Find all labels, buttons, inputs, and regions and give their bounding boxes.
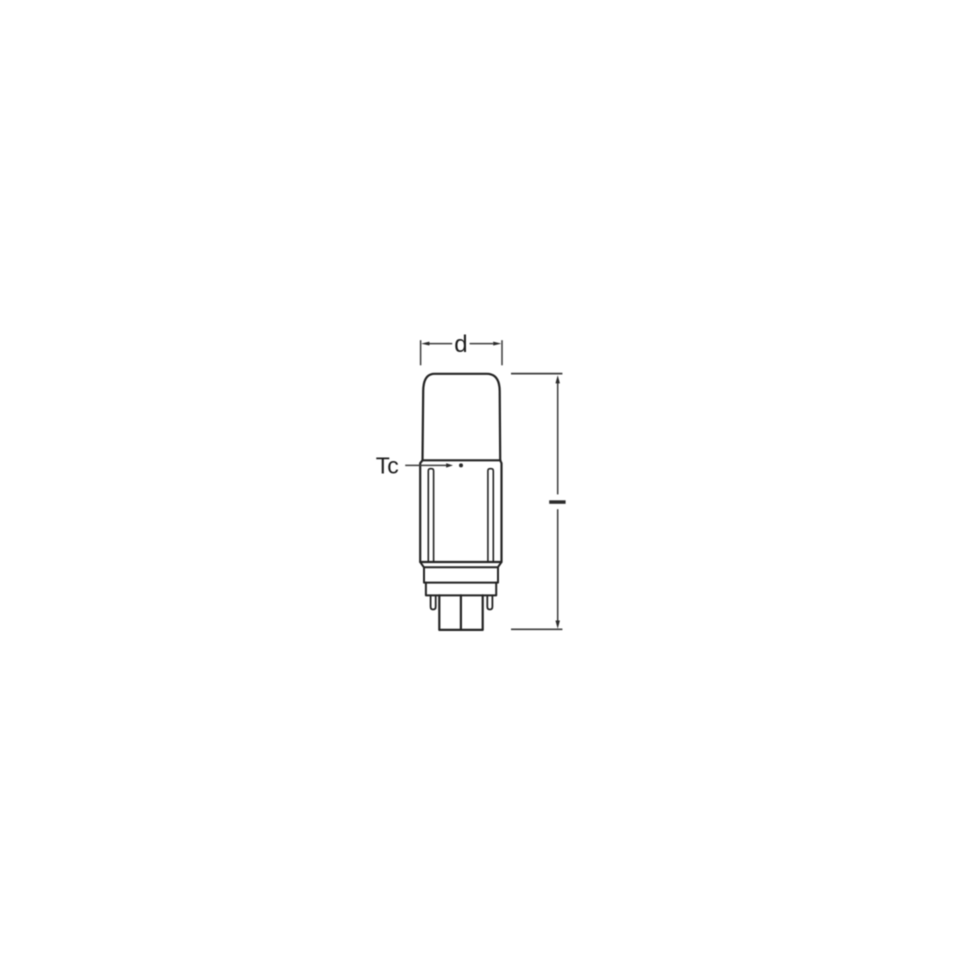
svg-text:Tc: Tc xyxy=(376,452,399,478)
svg-text:d: d xyxy=(454,331,467,358)
